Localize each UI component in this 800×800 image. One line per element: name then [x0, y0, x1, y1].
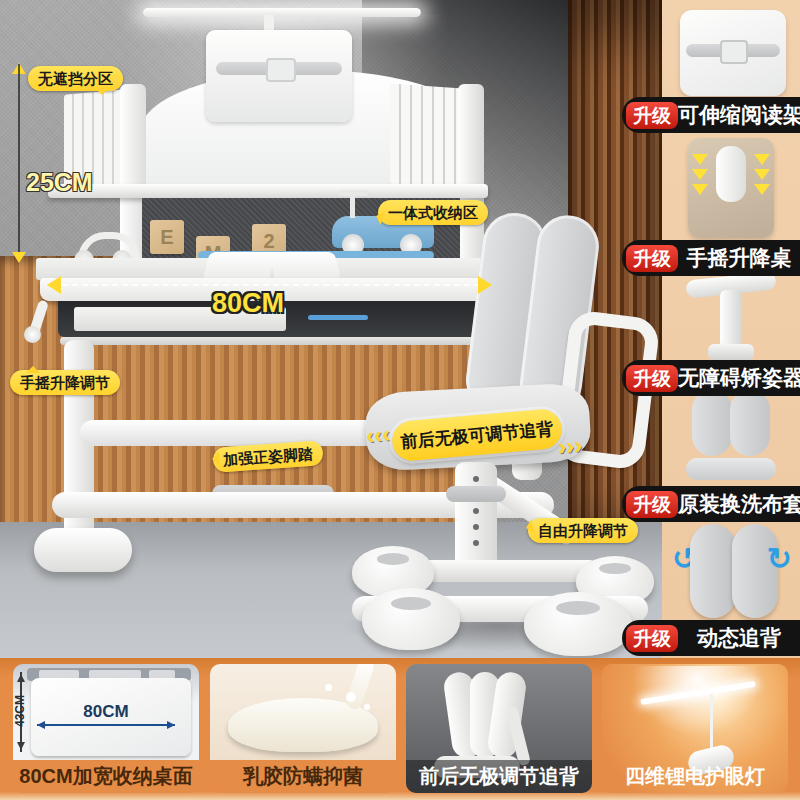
measure-arrow-down-icon — [12, 252, 26, 270]
panel-eye-lamp: 四维锂电护眼灯 — [602, 664, 788, 793]
crank-lift-image — [688, 138, 774, 238]
buckle — [720, 40, 748, 64]
under-desk-drawer — [58, 301, 542, 337]
reading-stand-image — [680, 10, 786, 96]
toy-car-handle — [350, 194, 355, 218]
panel-caption: 四维锂电护眼灯 — [602, 760, 788, 793]
panel-caption: 80CM加宽收纳桌面 — [13, 760, 199, 793]
cushion-lobe — [692, 390, 732, 456]
milk-splash — [346, 692, 356, 702]
product-poster: E M 2 — [0, 0, 800, 800]
upgrade-item: 升级 动态追背 — [622, 620, 800, 656]
tag-crank-adjust: 手摇升降调节 — [10, 370, 120, 395]
open-book — [206, 244, 338, 282]
letter-block: E — [150, 220, 184, 254]
milk-splash — [364, 704, 370, 710]
panel-caption: 前后无极调节追背 — [406, 760, 592, 793]
desk-width-value: 80CM — [212, 288, 284, 319]
chevron-down-icon — [754, 152, 770, 197]
upgrade-item: 升级 手摇升降桌 — [622, 240, 800, 276]
adjust-hole — [473, 524, 479, 530]
adjust-hole — [473, 476, 479, 482]
pencil — [308, 315, 368, 320]
reading-stand-buckle — [266, 58, 296, 82]
desktop-topview-image: 80CM 43CM — [13, 664, 199, 760]
shelf-board — [48, 184, 488, 198]
lamp-stem — [710, 694, 713, 752]
drawer-tray — [60, 337, 532, 345]
latex-cushion-image — [210, 664, 396, 760]
width-measure-arrow — [37, 724, 175, 726]
desk-width-measure-line — [52, 284, 480, 286]
upgrade-item: 升级 原装换洗布套 — [622, 486, 800, 522]
upgrade-badge: 升级 — [626, 625, 678, 652]
tag-free-lift-adjust: 自由升降调节 — [528, 518, 638, 543]
depth-value: 43CM — [13, 695, 27, 727]
post-clamp-ring — [446, 486, 506, 502]
crank-knob — [716, 146, 746, 202]
back-lobe — [690, 524, 736, 618]
shelf-height-value: 25CM — [26, 168, 93, 197]
main-scene: E M 2 — [0, 0, 662, 658]
dynamic-back-image: ↺ ↻ — [672, 518, 792, 624]
shelf-height-measure-line — [18, 64, 20, 254]
tag-open-partition: 无遮挡分区 — [28, 66, 123, 91]
width-value: 80CM — [13, 702, 199, 722]
chevron-down-icon — [692, 152, 708, 197]
rotate-arrow-icon: ↻ — [767, 544, 792, 574]
corrector-column — [720, 290, 742, 348]
milk-splash — [325, 684, 332, 691]
upgrade-label: 动态追背 — [678, 624, 800, 652]
cushion-lobe — [730, 390, 770, 456]
chair-lift-post — [455, 462, 497, 570]
panel-caption: 乳胶防螨抑菌 — [210, 760, 396, 793]
corrector-base — [708, 344, 754, 360]
books-right — [390, 83, 462, 188]
slide-arrows-left-icon: ‹‹‹ — [365, 420, 391, 450]
adjust-hole — [473, 508, 479, 514]
desk-foot — [34, 528, 132, 572]
chair-foot — [524, 592, 632, 656]
measure-arrow-right-icon — [478, 276, 501, 294]
adjust-hole — [473, 540, 479, 546]
upgrade-label: 原装换洗布套 — [678, 490, 800, 518]
hutch-right-column — [458, 84, 484, 264]
chair-foot — [362, 588, 460, 650]
tag-storage-area: 一体式收纳区 — [378, 200, 488, 225]
feature-strip: 80CM 43CM 80CM加宽收纳桌面 乳胶防螨抑菌 — [0, 658, 800, 800]
upgrade-item: 升级 无障碍矫姿器 — [622, 360, 800, 396]
upgrade-badge: 升级 — [626, 365, 678, 392]
panel-latex: 乳胶防螨抑菌 — [210, 664, 396, 793]
fabric-cover-image — [684, 390, 779, 485]
panel-back-adjust: 前后无极调节追背 — [406, 664, 592, 793]
measure-arrow-left-icon — [38, 276, 61, 294]
slide-arrows-right-icon: ››› — [557, 431, 583, 461]
posture-corrector-image — [686, 272, 776, 364]
upgrade-label: 无障碍矫姿器 — [678, 364, 800, 392]
panel-desktop-size: 80CM 43CM 80CM加宽收纳桌面 — [13, 664, 199, 793]
desk-lamp-bar — [143, 8, 421, 17]
upgrade-badge: 升级 — [626, 491, 678, 518]
upgrade-label: 可伸缩阅读架 — [678, 101, 800, 129]
milk-stream — [344, 664, 375, 711]
upgrade-badge: 升级 — [626, 245, 678, 272]
upgrade-item: 升级 可伸缩阅读架 — [622, 97, 800, 133]
upgrade-label: 手摇升降桌 — [678, 244, 800, 272]
upgrade-badge: 升级 — [626, 102, 678, 129]
cushion-seat — [686, 458, 776, 480]
crank-handle — [24, 326, 41, 343]
